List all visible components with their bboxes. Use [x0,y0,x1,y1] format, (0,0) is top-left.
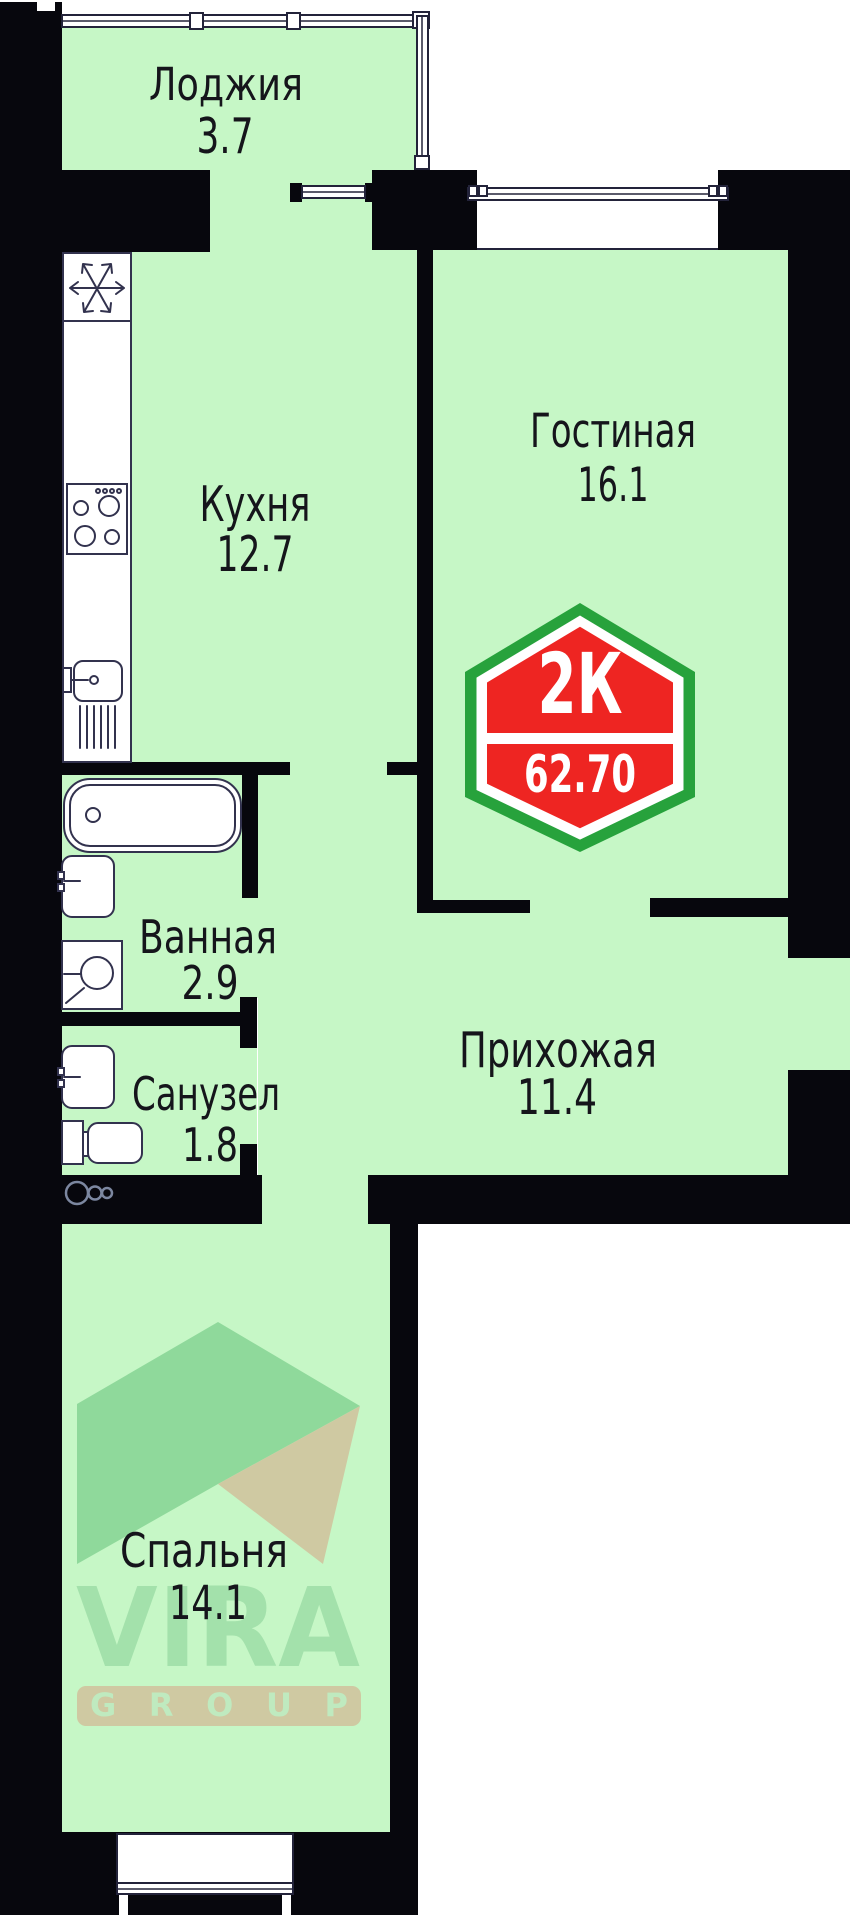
window-mullion [719,186,727,196]
window-mullion [287,13,300,29]
wall-segment [433,900,530,913]
wall-segment [788,170,850,958]
room-label-living: Гостиная [530,404,696,459]
wall-notch [37,0,55,11]
room-area-living: 16.1 [578,458,649,513]
window-end-cap [290,183,302,202]
window-mullion [479,186,487,196]
badge-total-area: 62.70 [524,745,636,805]
window-mullion [190,13,203,29]
room-label-kitchen: Кухня [200,476,311,533]
washbasin-icon [58,856,114,917]
wall-segment [240,997,257,1048]
stove-icon [67,484,127,554]
washing-machine-icon [62,941,122,1009]
window-mullion [709,186,717,196]
wall-segment [62,762,290,775]
entrance-opening [788,958,850,1070]
wall-segment [62,1012,240,1026]
balcony-door-opening [210,170,377,254]
room-area-loggia: 3.7 [197,108,254,165]
window-mullion [415,156,429,169]
room-area-kitchen: 12.7 [217,526,294,583]
wall-segment [62,170,210,252]
kitchen-window [302,186,365,198]
room-area-wc: 1.8 [182,1118,238,1172]
wall-segment [368,1175,850,1224]
kitchen-door-opening [290,762,387,777]
window-end-cap [365,183,377,202]
loggia-window-top [62,12,429,29]
floor-plan-page: VIRA GROUP [0,0,850,1915]
window-mullion [469,186,477,196]
window-recess [117,1834,293,1883]
room-area-bathroom: 2.9 [182,956,239,1010]
room-area-hallway: 11.4 [517,1069,597,1126]
room-label-bedroom: Спальня [120,1524,288,1579]
wc-washbasin-icon [58,1046,114,1108]
fridge-icon [63,253,131,321]
room-label-wc: Санузел [132,1067,280,1121]
wall-segment [390,1222,418,1915]
room-area-bedroom: 14.1 [169,1576,247,1631]
window-mullion [282,1895,291,1915]
wall-segment [0,2,62,1915]
badge-room-count: 2К [538,635,623,733]
room-hallway-corridor [258,775,433,1177]
wall-segment [242,775,258,898]
floor-plan: VIRA GROUP [0,0,850,1915]
wall-segment [417,250,433,913]
bathtub-icon [64,779,241,852]
window-mullion [119,1895,128,1915]
room-label-loggia: Лоджия [149,58,303,111]
badge-divider [460,733,700,744]
wall-segment [372,170,477,250]
bedroom-door-opening [262,1175,368,1224]
living-bay-window [468,186,728,200]
wall-segment [650,898,788,917]
loggia-window-right [415,16,429,169]
toilet-icon [62,1121,142,1164]
wall-segment [387,762,417,775]
wall-segment [718,170,790,250]
